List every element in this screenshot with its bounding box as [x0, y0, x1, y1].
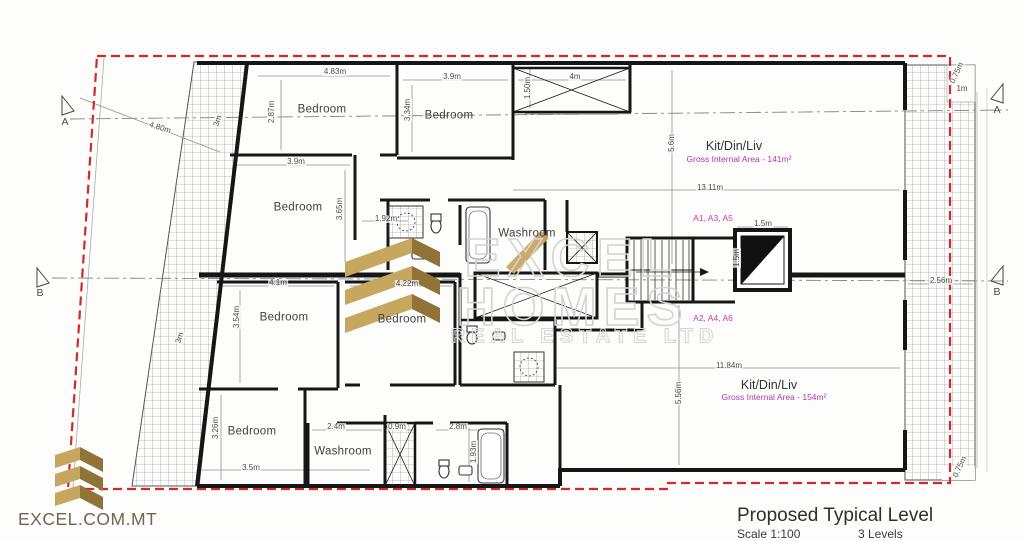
drawing-scale: Scale 1:100 [737, 527, 800, 541]
plan-linework [0, 0, 1024, 541]
section-marker-a: A [61, 117, 68, 128]
dimension-label: 1m [955, 85, 968, 93]
dimension-label: 3.34m [404, 98, 412, 122]
dimension-label: 0.9m [387, 423, 407, 431]
unit-room-label: Kit/Din/Liv [741, 379, 797, 392]
dimension-label: 5.6m [668, 133, 676, 153]
dimension-label: 3.54m [233, 305, 241, 329]
section-marker-b: B [993, 287, 1000, 298]
dimension-label: 4m [568, 73, 581, 81]
drawing-title: Proposed Typical Level [737, 505, 933, 527]
website-url: EXCEL.COM.MT [18, 509, 157, 530]
dimension-label: 11.84m [715, 362, 743, 370]
dimension-label: 5.56m [675, 381, 683, 405]
room-label-washroom: Washroom [498, 228, 556, 240]
unit-area-label: Gross Internal Area - 141m² [687, 155, 792, 164]
drawing-sheet: EXCEL HOMES REAL ESTATE LTD Bedroom Bedr… [0, 0, 1024, 541]
unit-area-label: Gross Internal Area - 154m² [722, 393, 827, 402]
dimension-label: 4.83m [323, 68, 347, 76]
excel-homes-logo [55, 447, 103, 510]
room-label-bedroom: Bedroom [274, 202, 323, 214]
dimension-label: 3.26m [212, 416, 220, 440]
section-marker-a: A [993, 105, 1000, 116]
dimension-label: 1.50m [524, 76, 532, 100]
room-label-bedroom: Bedroom [228, 426, 277, 438]
dimension-label: 2.56m [929, 277, 953, 285]
lift [735, 230, 790, 290]
dimension-label: 4.1m [268, 279, 288, 287]
unit-room-label: Kit/Din/Liv [706, 140, 762, 153]
dimension-label: 13.11m [696, 184, 724, 192]
room-label-bedroom: Bedroom [298, 104, 347, 116]
room-label-bedroom: Bedroom [378, 314, 427, 326]
dimension-label: 2.4m [326, 423, 346, 431]
dimension-label: 2.87m [268, 100, 276, 124]
room-label-bedroom: Bedroom [425, 110, 474, 122]
dimension-label: 2.8m [448, 423, 468, 431]
dimension-label: 1.5m [733, 248, 741, 268]
staircase [627, 238, 709, 302]
drawing-levels: 3 Levels [858, 527, 903, 541]
dimension-label: 3.5m [241, 464, 261, 472]
section-marker-b: B [36, 288, 43, 299]
dimension-label: 3.9m [286, 158, 306, 166]
room-label-washroom: Washroom [314, 446, 372, 458]
dimension-label: 1.5m [753, 220, 773, 228]
unit-code-label: A1, A3, A5 [693, 214, 733, 223]
room-label-bedroom: Bedroom [260, 312, 309, 324]
dimension-label: 3.65m [336, 197, 344, 221]
dimension-label: 1.93m [470, 440, 478, 464]
dimension-label: 4.22m [395, 280, 419, 288]
unit-code-label: A2, A4, A6 [693, 314, 733, 323]
dimension-label: 3.9m [442, 73, 462, 81]
dimension-label: 1.92m [374, 215, 398, 223]
